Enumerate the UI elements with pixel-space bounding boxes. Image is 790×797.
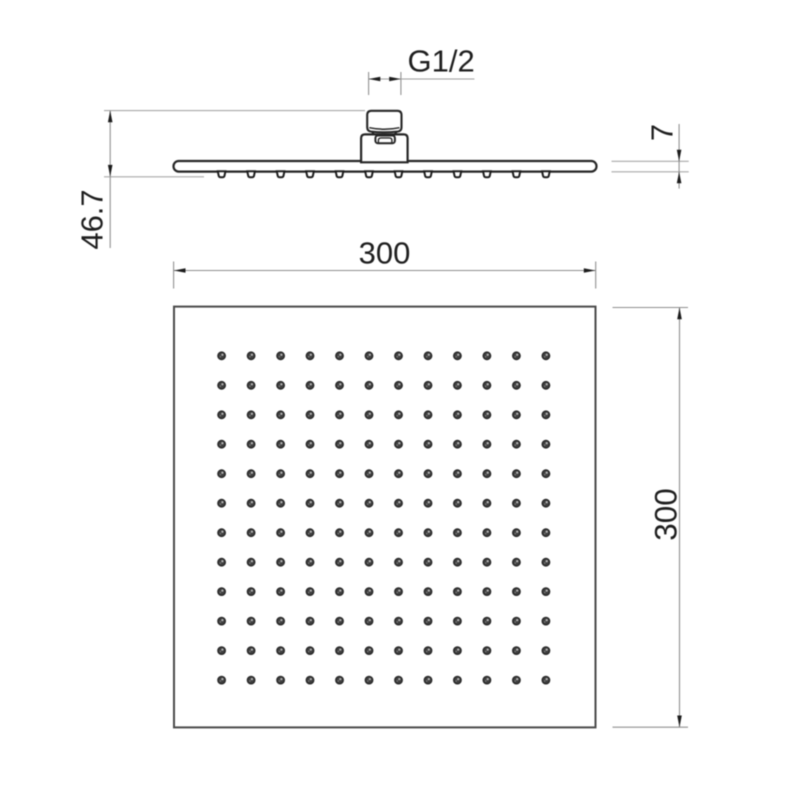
svg-text:300: 300 bbox=[648, 488, 684, 541]
svg-text:300: 300 bbox=[359, 236, 411, 271]
svg-text:7: 7 bbox=[645, 124, 680, 141]
svg-text:G1/2: G1/2 bbox=[408, 44, 475, 79]
svg-text:46.7: 46.7 bbox=[75, 189, 110, 249]
